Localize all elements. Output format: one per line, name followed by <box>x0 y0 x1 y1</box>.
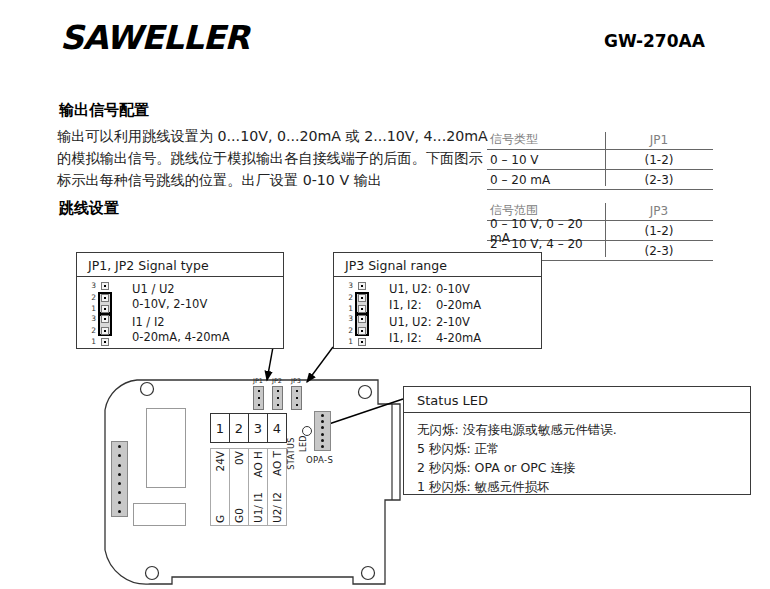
table-header-signal-type: 信号类型 <box>487 131 605 148</box>
jumper-graphic: 3 2 1 <box>345 281 369 314</box>
jp3-signal-range-box: JP3 Signal range 3 2 1 U1, U2: 0-10V I1, <box>333 252 542 349</box>
screw-hole-bottom-right <box>362 567 375 580</box>
status-line: 5 秒闪烁: 正常 <box>417 439 750 458</box>
screw-hole-top-left <box>141 383 154 396</box>
terminal-label-col-2: G0 0V <box>229 448 249 526</box>
option-signal-name: U1 / U2 <box>132 282 207 297</box>
jumper-pin <box>358 338 366 346</box>
terminal-1: 1 <box>210 413 230 443</box>
datasheet-page: SAWELLER GW-270AA 输出信号配置 输出可以利用跳线设置为 0..… <box>0 0 770 589</box>
status-line: 无闪烁: 没有接电源或敏感元件错误. <box>417 420 750 439</box>
jumper-graphic: 3 2 1 <box>88 314 112 347</box>
option-row-label: U1, U2: <box>389 315 436 331</box>
jumper-pin <box>358 282 366 290</box>
option-row-value: 4-20mA <box>436 331 481 347</box>
terminal-label-top: AO T <box>271 451 283 476</box>
jp12-option-current: 3 2 1 I1 / I2 0-20mA, 4-20mA <box>88 314 230 347</box>
pin-number: 3 <box>345 315 353 323</box>
opa-s-connector <box>314 411 331 451</box>
screw-hole-top-right <box>359 386 372 399</box>
pin-number: 2 <box>345 327 353 335</box>
pin-number: 1 <box>88 305 96 313</box>
option-row-label: U1, U2: <box>389 282 436 298</box>
terminal-number-row: 1 2 3 4 <box>210 413 287 443</box>
status-line: 1 秒闪烁: 敏感元件损坏 <box>417 477 750 496</box>
terminal-label-block: G 24V G0 0V U1/ I1 AO H U2/ I2 AO T <box>210 448 287 526</box>
option-labels: U1, U2: 0-10V I1, I2: 0-20mA <box>389 281 481 314</box>
terminal-4: 4 <box>267 413 287 443</box>
terminal-label-bottom: U2/ I2 <box>271 492 283 523</box>
status-line: 2 秒闪烁: OPA or OPC 连接 <box>417 458 750 477</box>
terminal-label-top: AO H <box>252 451 264 478</box>
option-row-value: 0-20mA <box>436 298 481 314</box>
pcb-component-outline-small <box>133 503 186 526</box>
jumper-pin <box>358 327 366 335</box>
pin-number: 2 <box>345 294 353 302</box>
jp3-label: JP3 <box>287 377 305 385</box>
pin-number: 3 <box>88 282 96 290</box>
table-row: 0 – 10 V (1-2) <box>487 150 713 170</box>
row-value: (1-2) <box>605 153 713 167</box>
table-header-jp1: JP1 <box>605 133 713 147</box>
option-signal-name: I1 / I2 <box>132 315 230 330</box>
pin-number: 3 <box>345 282 353 290</box>
jp1-label: JP1 <box>249 377 267 385</box>
pin-number: 3 <box>88 315 96 323</box>
pin-number: 1 <box>345 305 353 313</box>
terminal-3: 3 <box>248 413 268 443</box>
row-value: (2-3) <box>605 244 713 258</box>
jumper-pins-cap-2-3 <box>355 314 369 347</box>
arrow-jp12 <box>267 347 273 380</box>
jumper-pin-numbers: 3 2 1 <box>345 281 353 314</box>
option-labels: U1 / U2 0-10V, 2-10V <box>132 281 207 314</box>
jp3-option-high-range: 3 2 1 U1, U2: 2-10V I1, I2: 4-20mA <box>345 314 481 347</box>
arrow-jp3 <box>307 347 333 382</box>
terminal-label-top: 0V <box>233 451 245 465</box>
status-led-box: Status LED 无闪烁: 没有接电源或敏感元件错误. 5 秒闪烁: 正常 … <box>403 386 751 495</box>
section-title-jumper-settings: 跳线设置 <box>59 199 119 218</box>
intro-line-1: 输出可以利用跳线设置为 0...10V, 0...20mA 或 2...10V,… <box>57 125 497 147</box>
row-value: (1-2) <box>605 224 713 238</box>
jumper-pin <box>101 327 109 335</box>
option-signal-range: 0-20mA, 4-20mA <box>132 330 230 345</box>
left-pin-connector <box>111 441 128 517</box>
terminal-label-col-4: U2/ I2 AO T <box>267 448 287 526</box>
pin-number: 1 <box>345 338 353 346</box>
jp12-signal-type-box: JP1, JP2 Signal type 3 2 1 U1 / U2 0-10V… <box>76 252 284 349</box>
option-labels: U1, U2: 2-10V I1, I2: 4-20mA <box>389 314 481 347</box>
pcb-component-outline-large <box>146 408 186 488</box>
jp12-box-title: JP1, JP2 Signal type <box>77 253 283 277</box>
intro-paragraph: 输出可以利用跳线设置为 0...10V, 0...20mA 或 2...10V,… <box>57 125 497 191</box>
jumper-pins-cap-2-3 <box>98 314 112 347</box>
terminal-label-col-3: U1/ I1 AO H <box>248 448 268 526</box>
table-header-row: 信号类型 JP1 <box>487 130 713 150</box>
terminal-label-bottom: U1/ I1 <box>252 492 264 523</box>
model-number: GW-270AA <box>604 31 705 51</box>
jp2-label: JP2 <box>268 377 286 385</box>
option-row-value: 2-10V <box>436 315 481 331</box>
option-row-label: I1, I2: <box>389 331 436 347</box>
section-title-output-config: 输出信号配置 <box>59 101 149 120</box>
terminal-label-bottom: G0 <box>233 508 245 523</box>
pin-number: 2 <box>88 327 96 335</box>
status-led-silkscreen-line1: STATUS <box>287 424 298 484</box>
jumper-pin <box>101 282 109 290</box>
jp3-header <box>291 386 302 410</box>
jp12-option-voltage: 3 2 1 U1 / U2 0-10V, 2-10V <box>88 281 207 314</box>
jumper-pin <box>101 338 109 346</box>
option-signal-range: 0-10V, 2-10V <box>132 297 207 312</box>
row-label: 0 – 10 V <box>487 153 605 167</box>
option-row-value: 0-10V <box>436 282 481 298</box>
intro-line-2: 的模拟输出信号。跳线位于模拟输出各自接线端子的后面。下面图示 <box>57 147 497 169</box>
terminal-label-top: 24V <box>214 451 226 472</box>
jumper-pin-numbers: 3 2 1 <box>88 314 96 347</box>
terminal-label-bottom: G <box>214 515 226 523</box>
brand-logo: SAWELLER <box>60 18 249 57</box>
opa-s-label: OPA-S <box>306 455 344 465</box>
table-header-jp3: JP3 <box>605 204 713 218</box>
terminal-label-col-1: G 24V <box>210 448 230 526</box>
status-led-descriptions: 无闪烁: 没有接电源或敏感元件错误. 5 秒闪烁: 正常 2 秒闪烁: OPA … <box>404 413 750 496</box>
table-row: 0 – 20 mA (2-3) <box>487 170 713 190</box>
jumper-pin <box>358 315 366 323</box>
jp3-box-title: JP3 Signal range <box>334 253 541 277</box>
jp3-option-low-range: 3 2 1 U1, U2: 0-10V I1, I2: 0-20mA <box>345 281 481 314</box>
jumper-pin <box>101 315 109 323</box>
status-led-box-title: Status LED <box>404 387 750 413</box>
row-label: 0 – 20 mA <box>487 173 605 187</box>
pin-number: 1 <box>88 338 96 346</box>
terminal-2: 2 <box>229 413 249 443</box>
option-row-label: I1, I2: <box>389 298 436 314</box>
jumper-graphic: 3 2 1 <box>345 314 369 347</box>
option-labels: I1 / I2 0-20mA, 4-20mA <box>132 314 230 347</box>
row-value: (2-3) <box>605 173 713 187</box>
jumper-pin <box>101 294 109 302</box>
jp2-header <box>272 386 283 410</box>
jumper-pin-numbers: 3 2 1 <box>88 281 96 314</box>
jp1-header <box>253 386 264 410</box>
pin-number: 2 <box>88 294 96 302</box>
jumper-graphic: 3 2 1 <box>88 281 112 314</box>
jumper-pin <box>101 305 109 313</box>
jumper-pin <box>358 305 366 313</box>
jumper-pins-cap-1-2 <box>98 281 112 314</box>
intro-line-3: 标示出每种信号跳线的位置。出厂设置 0-10 V 输出 <box>57 169 497 191</box>
jumper-pin-numbers: 3 2 1 <box>345 314 353 347</box>
jumper-pin <box>358 294 366 302</box>
screw-hole-bottom-left <box>146 567 159 580</box>
signal-type-table: 信号类型 JP1 0 – 10 V (1-2) 0 – 20 mA (2-3) <box>487 130 713 190</box>
jumper-pins-cap-1-2 <box>355 281 369 314</box>
